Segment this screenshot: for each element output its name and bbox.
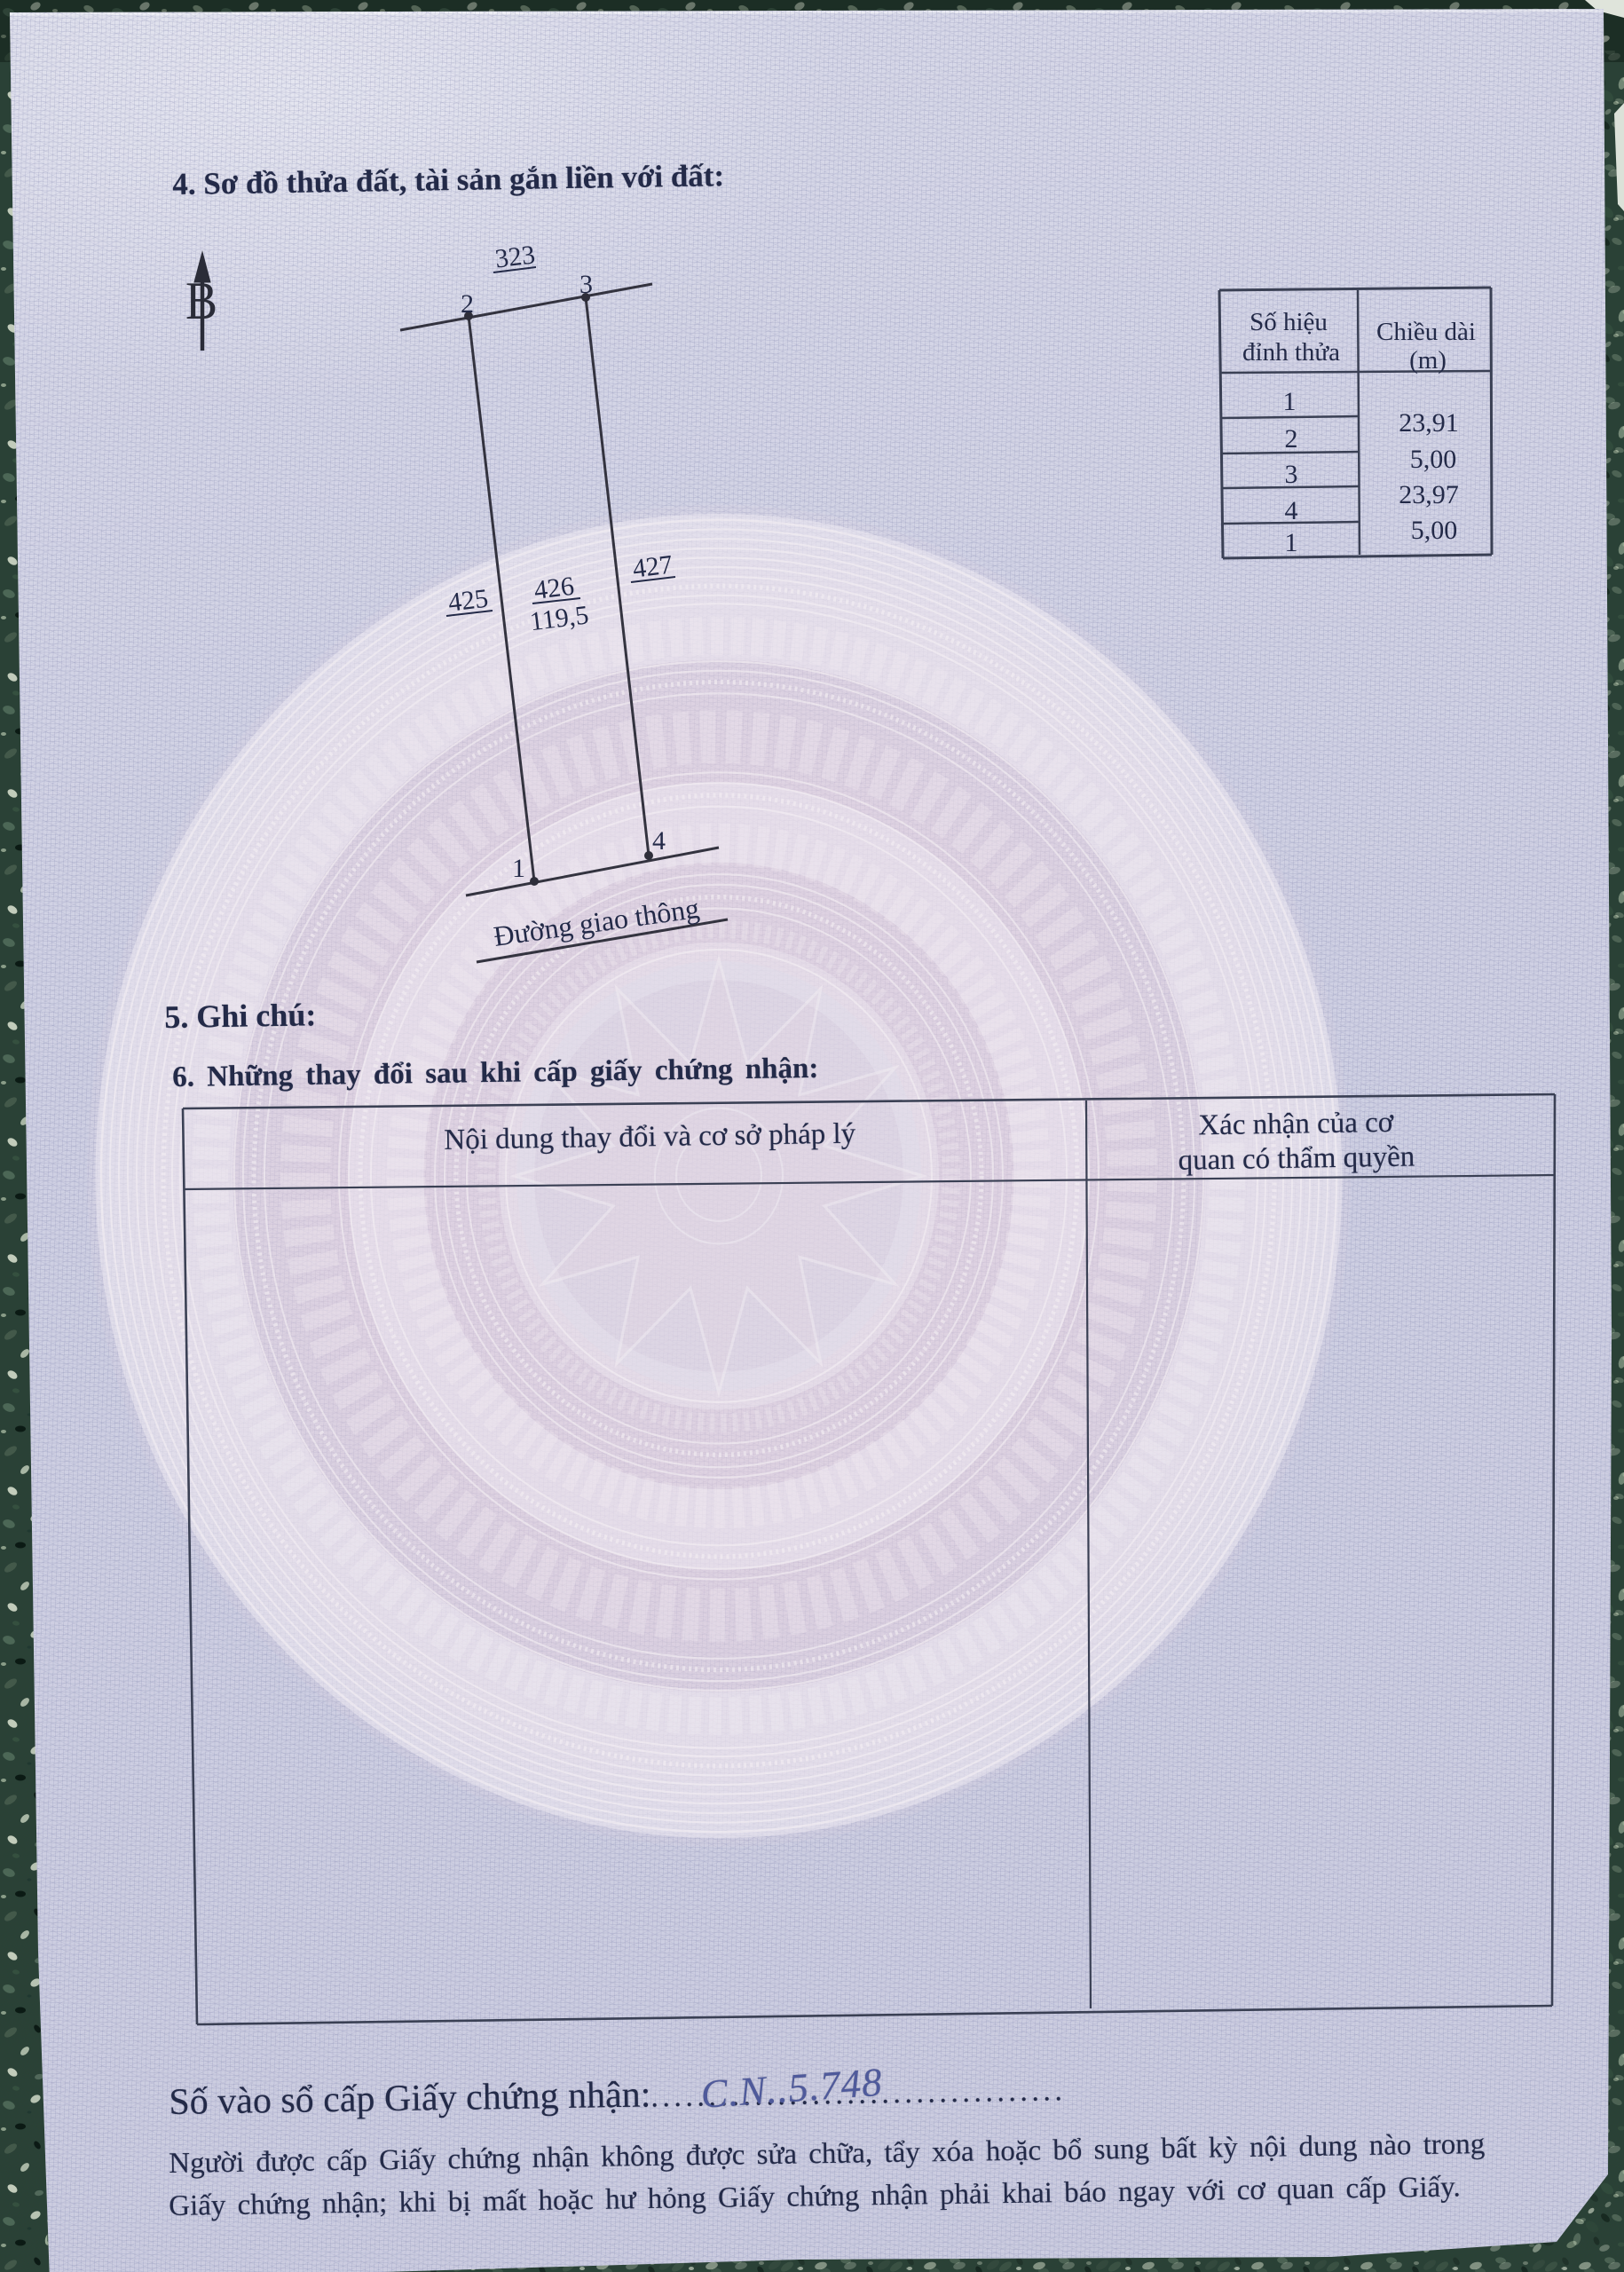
svg-text:1: 1 <box>512 854 525 883</box>
svg-text:23,97: 23,97 <box>1399 480 1459 509</box>
svg-text:3: 3 <box>1285 460 1298 489</box>
svg-text:B: B <box>185 272 217 330</box>
svg-text:5,00: 5,00 <box>1411 516 1458 545</box>
svg-text:4: 4 <box>1285 496 1298 525</box>
svg-text:1: 1 <box>1285 528 1298 557</box>
svg-text:(m): (m) <box>1409 346 1447 375</box>
svg-text:4: 4 <box>652 826 666 856</box>
svg-text:Chiều dài: Chiều dài <box>1376 318 1476 346</box>
svg-text:1: 1 <box>1283 387 1297 416</box>
svg-text:2: 2 <box>461 289 474 319</box>
svg-text:Đường giao thông: Đường giao thông <box>492 892 701 952</box>
svg-text:5,00: 5,00 <box>1410 445 1457 474</box>
svg-text:2: 2 <box>1285 424 1298 454</box>
svg-text:Số hiệu: Số hiệu <box>1250 308 1328 336</box>
svg-text:đỉnh thửa: đỉnh thửa <box>1242 338 1340 367</box>
svg-text:3: 3 <box>579 270 593 299</box>
svg-text:23,91: 23,91 <box>1399 408 1459 438</box>
svg-text:323: 323 <box>493 240 537 273</box>
svg-text:119,5: 119,5 <box>528 600 590 636</box>
